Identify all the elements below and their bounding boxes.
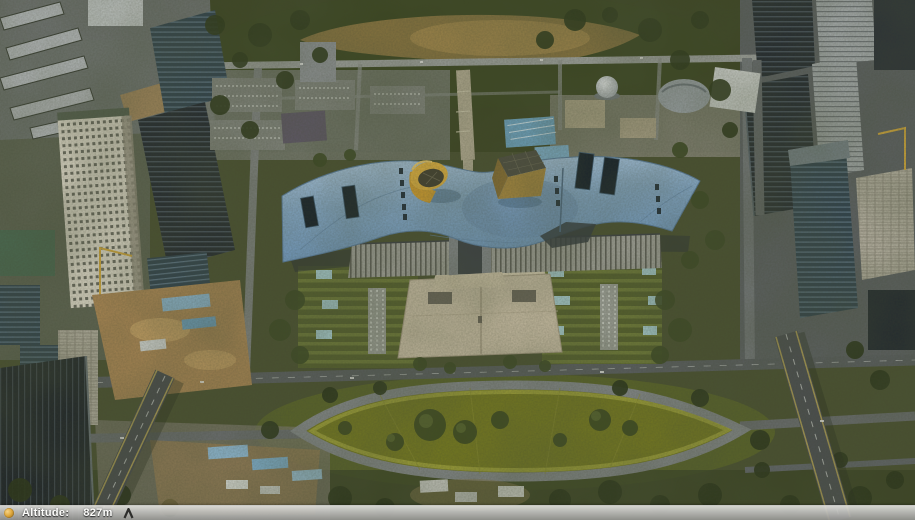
mountain-peak-icon — [123, 508, 134, 519]
map-viewport: Altitude: 827m — [0, 0, 915, 520]
status-bar: Altitude: 827m — [0, 505, 915, 520]
imagery-texture — [0, 0, 915, 520]
altitude-value: 827m — [83, 506, 112, 520]
altitude-label: Altitude: — [22, 506, 69, 520]
status-indicator-icon — [4, 508, 14, 518]
aerial-3d-view[interactable] — [0, 0, 915, 520]
